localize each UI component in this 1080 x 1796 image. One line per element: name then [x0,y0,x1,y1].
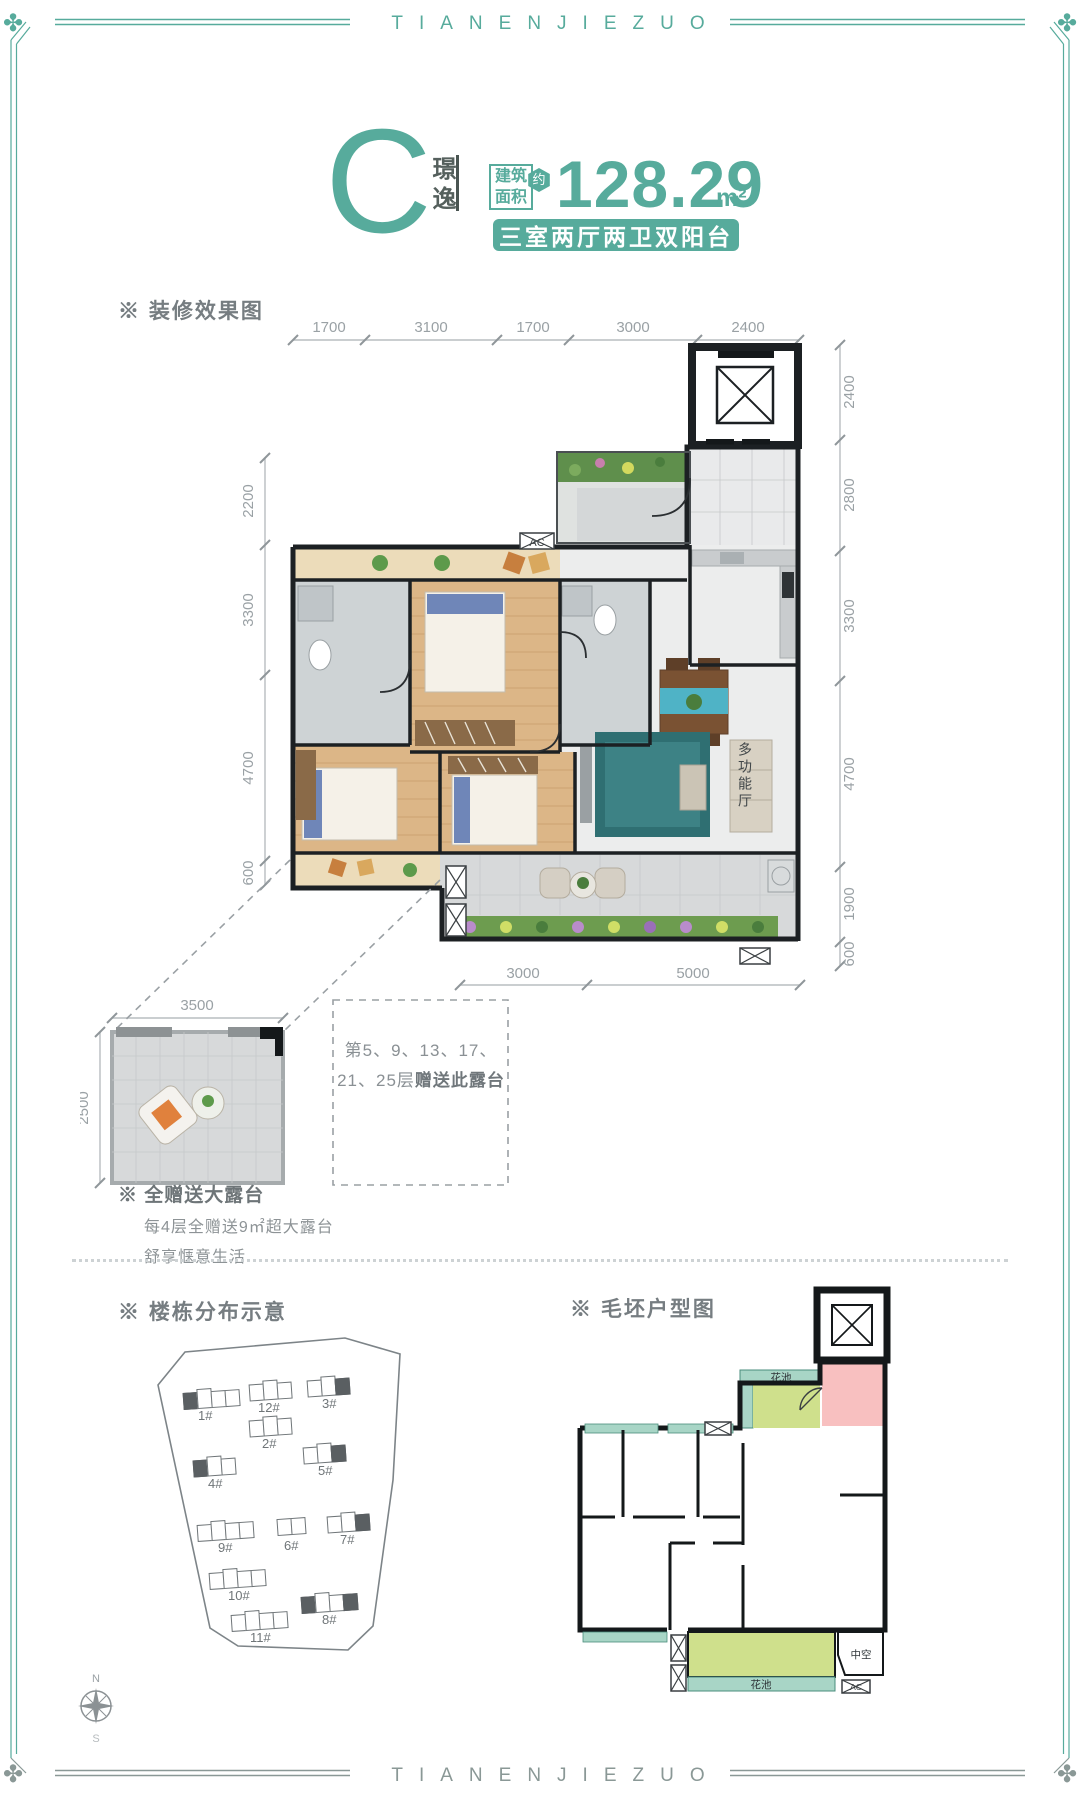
building-12 [249,1379,292,1402]
building-6 [277,1517,306,1536]
building-7 [327,1511,370,1534]
compass-south-label: S [92,1733,99,1745]
flower-bed-bottom-label: 花池 [751,1678,772,1691]
site-plan: 1# 12# 3# 2# 4# 5# 9# 6# 7# 10# 8# 11# [140,1330,430,1670]
area-label-bottom: 面积 [491,187,531,208]
layout-badge: 三室两厅两卫双阳台 [493,219,739,251]
section-site-plan: ※ 楼栋分布示意 [118,1296,287,1326]
svg-text:1900: 1900 [841,887,858,920]
svg-text:3100: 3100 [414,320,447,336]
terrace-detail-plan: 3500 2500 [80,997,283,1183]
stair-lobby [822,1363,883,1426]
svg-text:1700: 1700 [516,320,549,336]
building-4 [193,1455,236,1478]
svg-text:5000: 5000 [676,965,709,982]
building-5-label: 5# [318,1463,332,1478]
bottom-banner-text: TIANENJIEZUO [391,1765,720,1786]
terrace-gift-note: ※ 全赠送大露台 每4层全赠送9㎡超大露台 舒享惬意生活 [118,1180,334,1267]
gift-line2: 舒享惬意生活 [118,1243,334,1267]
area-label-box: 建筑 面积 [489,164,533,210]
building-11-label: 11# [250,1630,271,1645]
building-1 [183,1386,240,1410]
building-5 [303,1442,346,1465]
building-11 [231,1608,288,1632]
building-3-label: 3# [322,1396,336,1411]
building-8-label: 8# [322,1612,336,1627]
top-banner-text: TIANENJIEZUO [391,13,720,34]
ac-label: AC [850,1682,862,1692]
svg-text:1700: 1700 [312,320,345,336]
compass-north-label: N [92,1673,100,1685]
terrace-floors-note: 第5、9、13、17、 21、25层赠送此露台 [336,1036,506,1096]
unit-letter: C [325,108,432,256]
unit-name-divider [456,155,459,211]
unit-name: 璟逸 [424,156,459,216]
building-7-label: 7# [340,1532,354,1547]
floors-note-line2-bold: 赠送此露台 [415,1071,505,1090]
building-2 [249,1415,292,1438]
clover-ornament-top-right: ✤ [1057,10,1077,37]
building-8 [301,1590,358,1614]
building-3 [307,1375,350,1398]
svg-text:3500: 3500 [180,997,213,1014]
svg-text:2800: 2800 [841,478,858,511]
svg-text:3300: 3300 [841,599,858,632]
gift-title: ※ 全赠送大露台 [118,1180,334,1207]
building-2-label: 2# [262,1436,276,1451]
ac-label: AC [529,537,544,549]
building-6-label: 6# [284,1538,298,1553]
svg-text:2400: 2400 [731,320,764,336]
svg-text:600: 600 [240,860,257,885]
svg-text:3300: 3300 [240,593,257,626]
bare-balcony [688,1632,835,1677]
svg-text:4700: 4700 [240,751,257,784]
compass: N S [60,1660,132,1750]
floors-note-line2-normal: 21、25层 [337,1071,415,1090]
building-10 [209,1566,266,1590]
floors-note-line2: 21、25层赠送此露台 [336,1066,506,1096]
multifunction-room-label: 多功能厅 [735,742,755,810]
svg-text:2200: 2200 [240,484,257,517]
svg-text:4700: 4700 [841,757,858,790]
gift-line1: 每4层全赠送9㎡超大露台 [118,1213,334,1237]
building-9-label: 9# [218,1540,232,1555]
void-label: 中空 [851,1648,872,1661]
svg-text:2500: 2500 [80,1091,92,1124]
building-4-label: 4# [208,1476,222,1491]
area-unit: m² [716,184,747,213]
floorplan-flyer: TIANENJIEZUO ✤ ✤ TIANENJIEZUO ✤ ✤ C 璟逸 建… [0,0,1080,1796]
clover-ornament-top-left: ✤ [3,10,23,37]
svg-text:3000: 3000 [506,965,539,982]
building-1-label: 1# [198,1408,212,1423]
clover-ornament-bottom-right: ✤ [1057,1761,1077,1788]
svg-text:2400: 2400 [841,375,858,408]
svg-text:600: 600 [841,941,858,966]
floors-note-line1: 第5、9、13、17、 [336,1036,506,1066]
area-label-top: 建筑 [491,166,531,187]
building-10-label: 10# [228,1588,250,1603]
entry-garden [753,1384,820,1428]
interior-walls [580,1430,885,1630]
bare-floor-plan: 花池 花池 中空 AC [545,1255,915,1705]
clover-ornament-bottom-left: ✤ [3,1761,23,1788]
building-12-label: 12# [258,1400,280,1415]
svg-text:3000: 3000 [616,320,649,336]
building-9 [197,1518,254,1542]
